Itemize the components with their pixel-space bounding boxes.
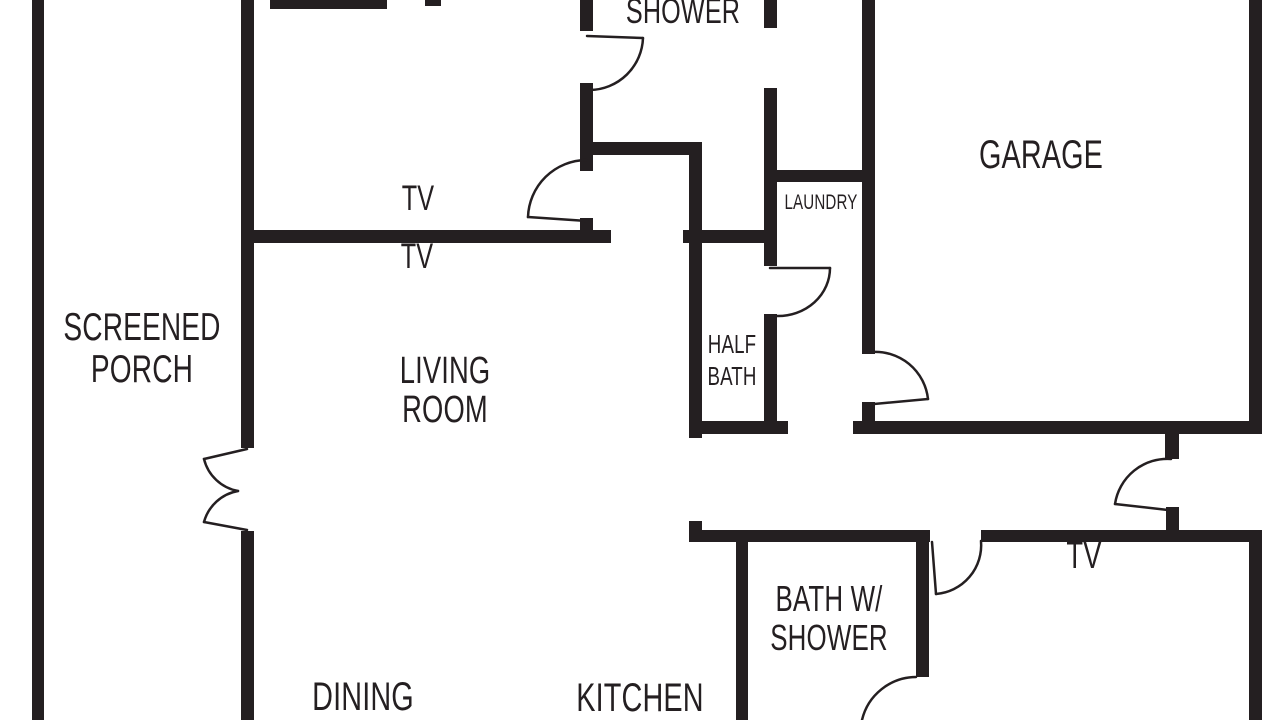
wall-hall-door-jamb-upper <box>1165 433 1179 459</box>
door-arc-porch-upper <box>204 459 238 491</box>
door-leaf-bath <box>932 542 936 594</box>
wall-top-fragment-b <box>425 0 441 6</box>
room-label-tv-living: TV <box>316 239 518 275</box>
wall-porch-divider-upper <box>241 0 254 448</box>
door-arc-half-bath <box>777 268 830 316</box>
wall-kitchen-hall-left <box>689 530 930 542</box>
wall-half-bath-top <box>683 230 777 243</box>
room-label-garage: GARAGE <box>940 135 1142 176</box>
wall-garage-bottom <box>853 421 1262 434</box>
room-label-kitchen: KITCHEN <box>539 678 741 719</box>
door-leaf-closet <box>528 217 587 221</box>
room-label-screened-porch: SCREENED PORCH <box>41 307 243 391</box>
door-arc-hallway <box>1115 459 1171 504</box>
door-arc-closet <box>528 160 586 217</box>
door-leaf-porch-lower <box>204 522 247 530</box>
door-leaf-shower <box>587 36 643 38</box>
door-arc-porch-lower <box>204 491 238 522</box>
door-arc-bath-lower <box>862 677 916 720</box>
wall-shower-left-mid <box>580 83 593 171</box>
room-label-laundry: LAUNDRY <box>720 192 922 214</box>
wall-exterior-right-upper <box>1249 0 1262 433</box>
door-arc-shower <box>590 38 643 90</box>
room-label-tv-bedroom: TV <box>983 537 1185 576</box>
wall-porch-divider-lower <box>241 531 254 720</box>
room-label-bath-with-shower: BATH W/ SHOWER <box>728 579 930 657</box>
wall-top-fragment-a <box>270 0 387 9</box>
room-label-dining: DINING <box>262 677 464 718</box>
door-leaf-garage <box>874 399 928 404</box>
floor-plan: SHOWER TV TV SCREENED PORCH LIVING ROOM … <box>0 0 1280 720</box>
wall-exterior-right-lower <box>1249 530 1262 720</box>
door-arc-bath <box>936 541 981 594</box>
room-label-half-bath: HALF BATH <box>631 328 833 392</box>
wall-shower-bottom <box>581 142 698 155</box>
room-label-shower-room: SHOWER <box>582 0 784 30</box>
room-label-living-room: LIVING ROOM <box>344 352 546 430</box>
door-arc-garage <box>871 352 928 399</box>
door-leaf-hallway <box>1115 504 1168 510</box>
wall-half-bath-left <box>689 142 702 438</box>
room-label-tv-upper: TV <box>317 181 519 217</box>
wall-half-bath-bottom <box>694 421 788 434</box>
wall-laundry-top <box>764 170 875 182</box>
door-leaf-porch-upper <box>204 449 247 459</box>
